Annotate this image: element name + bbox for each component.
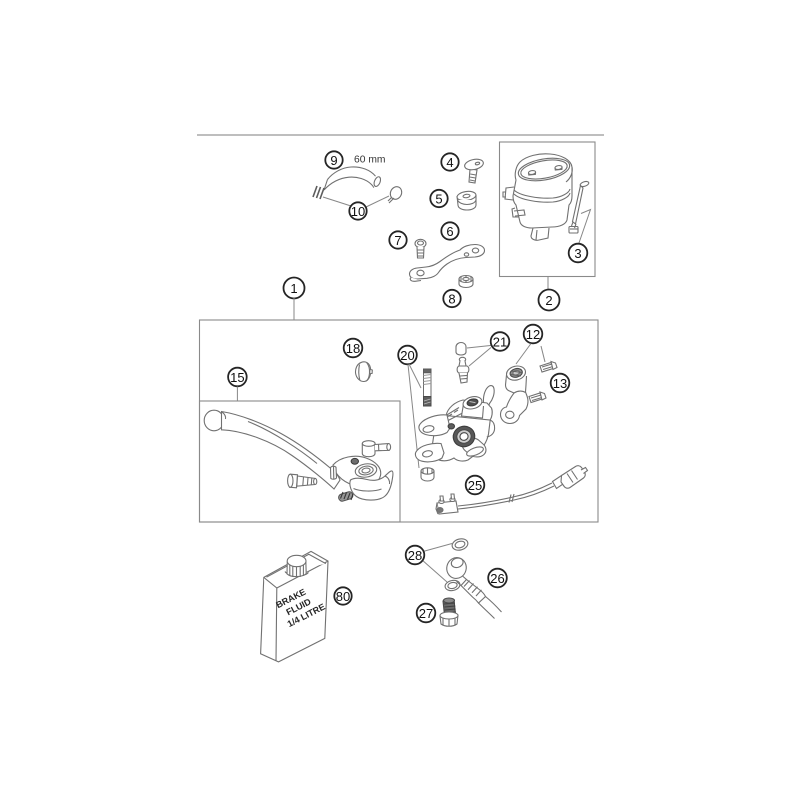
svg-text:10: 10 [351, 204, 365, 219]
svg-text:4: 4 [446, 155, 453, 170]
svg-text:5: 5 [435, 192, 442, 207]
svg-text:9: 9 [330, 153, 337, 168]
svg-text:13: 13 [553, 376, 567, 391]
svg-text:8: 8 [448, 292, 455, 307]
svg-text:80: 80 [336, 589, 350, 604]
svg-text:28: 28 [408, 548, 422, 563]
svg-text:21: 21 [493, 335, 507, 350]
svg-text:18: 18 [346, 341, 360, 356]
svg-text:26: 26 [490, 571, 504, 586]
svg-text:12: 12 [526, 327, 540, 342]
svg-text:3: 3 [574, 246, 581, 261]
svg-text:6: 6 [446, 224, 453, 239]
svg-text:20: 20 [400, 348, 414, 363]
svg-text:2: 2 [545, 293, 552, 308]
svg-text:60 mm: 60 mm [354, 155, 385, 166]
svg-text:25: 25 [468, 478, 482, 493]
svg-text:27: 27 [419, 606, 433, 621]
svg-text:1: 1 [290, 281, 297, 296]
svg-text:15: 15 [230, 370, 244, 385]
svg-text:7: 7 [394, 233, 401, 248]
